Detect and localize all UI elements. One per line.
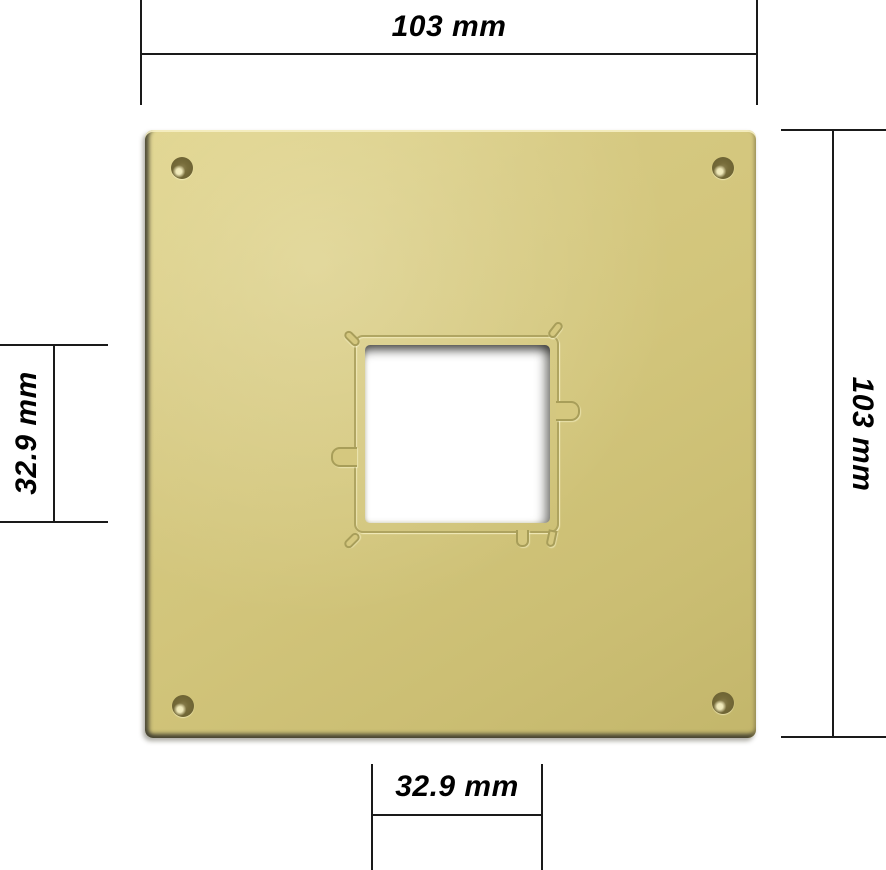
cutout-notch-bottom bbox=[516, 530, 529, 547]
screw-hole-top-left bbox=[171, 157, 193, 179]
dim-top-line bbox=[140, 53, 758, 55]
cover-plate bbox=[145, 130, 756, 738]
diagram-canvas: 103 mm 103 mm 32.9 mm 32.9 mm bbox=[0, 0, 886, 870]
dim-left-label: 32.9 mm bbox=[9, 363, 45, 503]
cutout-tab-left bbox=[331, 447, 357, 467]
screw-hole-top-right bbox=[712, 157, 734, 179]
dim-right-label: 103 mm bbox=[844, 364, 880, 504]
dim-right-line bbox=[832, 129, 834, 738]
cutout-tab-right bbox=[556, 401, 580, 421]
dim-bottom-line bbox=[371, 814, 543, 816]
center-cutout bbox=[365, 345, 550, 523]
dim-bottom-label: 32.9 mm bbox=[371, 770, 543, 804]
screw-hole-bottom-right bbox=[712, 692, 734, 714]
cutout-notch-bottom-right bbox=[545, 529, 557, 547]
dim-left-line bbox=[53, 344, 55, 523]
cutout-notch-top-right bbox=[546, 320, 564, 340]
cutout-notch-bottom-left bbox=[342, 531, 361, 550]
dim-top-label: 103 mm bbox=[141, 10, 757, 44]
screw-hole-bottom-left bbox=[172, 695, 194, 717]
